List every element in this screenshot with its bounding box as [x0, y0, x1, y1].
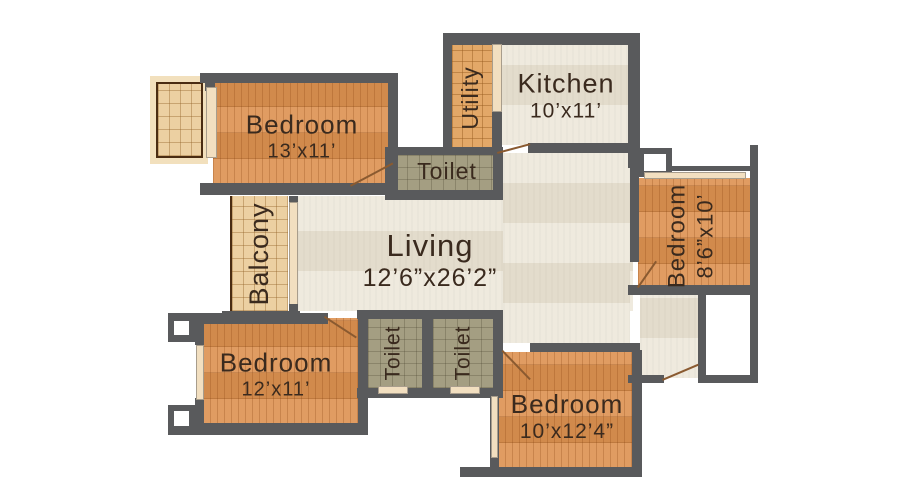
door-strip: [450, 386, 480, 394]
room-name: Bedroom: [246, 111, 359, 141]
room-label-bedroom-bottom-left: Bedroom 12’x11’: [220, 349, 333, 402]
patio-floor: [156, 82, 203, 158]
room-label-toilet-bottom-left: Toilet: [380, 325, 405, 380]
room-label-utility: Utility: [457, 66, 485, 129]
wall-niche: [174, 411, 189, 426]
wall: [492, 112, 502, 152]
room-label-bedroom-bottom-right: Bedroom 10’x12’4”: [511, 390, 624, 444]
room-name: Kitchen: [517, 68, 614, 99]
room-label-living: Living 12’6”x26’2”: [363, 228, 498, 292]
room-label-kitchen: Kitchen 10’x11’: [517, 68, 614, 123]
floor-plan: Bedroom 13’x11’ Utility Kitchen 10’x11’ …: [0, 0, 900, 500]
wall: [443, 33, 452, 152]
room-label-toilet-bottom-right: Toilet: [450, 325, 475, 380]
room-living-floor-upper: [503, 153, 630, 343]
room-name: Bedroom: [220, 349, 333, 379]
door-strip: [492, 44, 502, 112]
wall: [698, 375, 758, 383]
wall: [195, 313, 204, 345]
wall: [493, 310, 503, 398]
room-dims: 10’x12’4”: [511, 420, 624, 444]
wall: [200, 73, 398, 83]
duct-shaft-inner: [644, 154, 666, 171]
room-label-bedroom-top-left: Bedroom 13’x11’: [246, 111, 359, 164]
door-strip: [378, 386, 408, 394]
wall: [390, 147, 502, 155]
window-strip: [644, 172, 746, 179]
sliding-door-strip: [289, 202, 298, 306]
wall: [632, 350, 642, 477]
window-strip: [196, 345, 204, 400]
room-label-bedroom-right: Bedroom 8’6”x10’: [663, 184, 718, 288]
wall: [750, 145, 758, 300]
wall: [443, 33, 640, 45]
wall: [750, 300, 758, 383]
room-dims: 13’x11’: [246, 140, 359, 163]
wall: [630, 168, 639, 262]
room-label-balcony: Balcony: [243, 202, 275, 305]
room-dims: 12’x11’: [220, 378, 333, 401]
wall: [358, 313, 368, 435]
room-living-corridor: [640, 295, 698, 378]
wall: [460, 467, 640, 477]
room-dims: 10’x11’: [517, 99, 614, 123]
wall: [200, 183, 398, 195]
room-name: Bedroom: [511, 390, 624, 420]
room-name: Living: [363, 228, 498, 264]
wall: [195, 398, 204, 425]
wall: [289, 304, 298, 313]
wall: [385, 190, 503, 200]
door-strip: [491, 396, 498, 458]
wall: [528, 143, 630, 153]
wall-niche: [174, 321, 189, 335]
window-strip: [206, 87, 217, 158]
room-dims: 12’6”x26’2”: [363, 263, 498, 292]
room-dims: 8’6”x10’: [692, 184, 718, 288]
wall: [422, 310, 433, 390]
wall: [698, 295, 706, 383]
wall: [530, 343, 640, 352]
room-label-toilet-top: Toilet: [417, 158, 477, 184]
room-name: Bedroom: [663, 184, 692, 288]
